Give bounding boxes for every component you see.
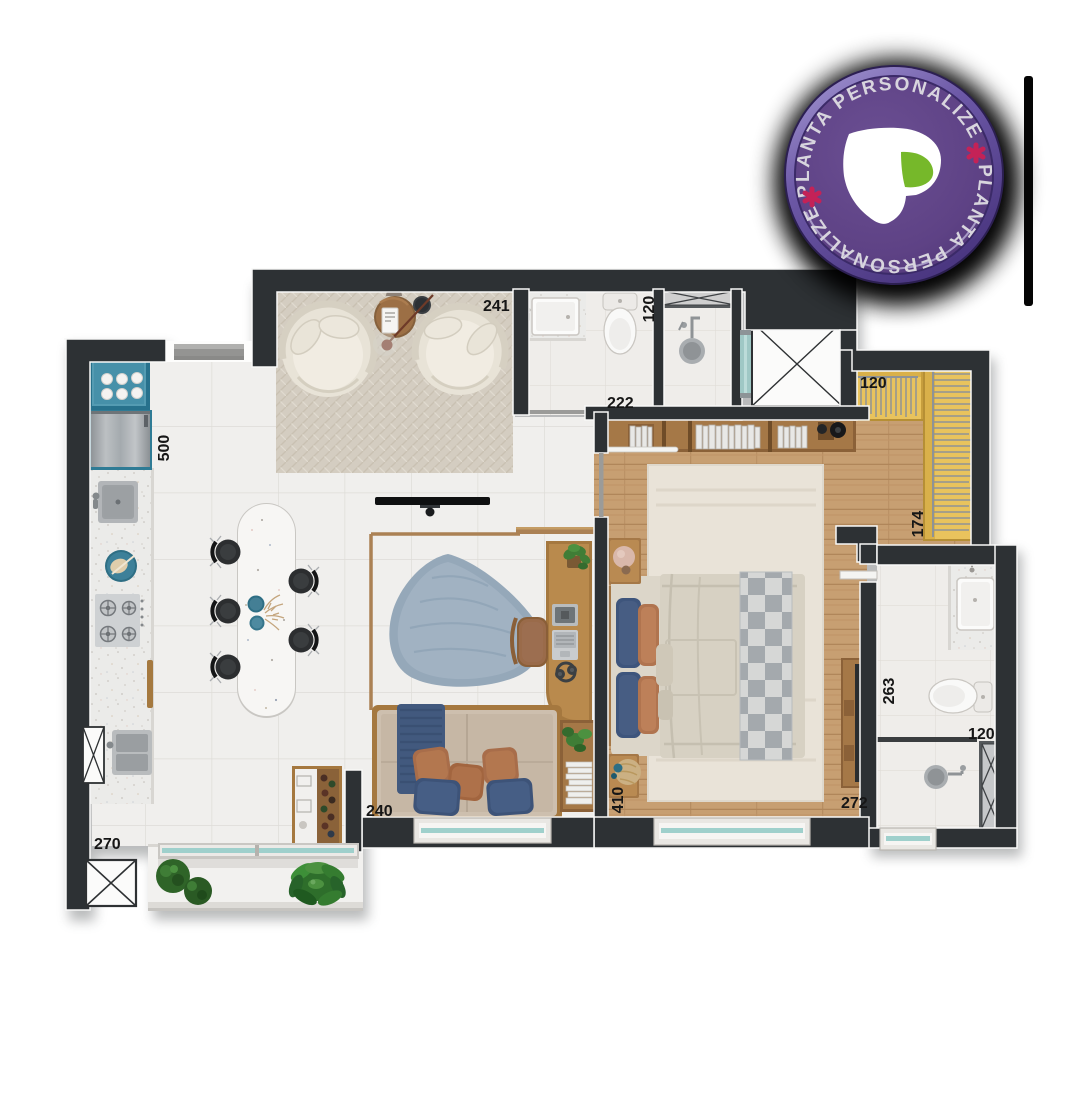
svg-text:410: 410: [610, 787, 627, 814]
svg-text:241: 241: [483, 298, 510, 315]
svg-text:272: 272: [841, 795, 868, 812]
svg-text:174: 174: [910, 511, 927, 538]
svg-text:270: 270: [94, 836, 121, 853]
svg-text:120: 120: [968, 726, 995, 743]
svg-text:120: 120: [641, 296, 658, 323]
svg-text:222: 222: [607, 395, 634, 412]
svg-text:263: 263: [881, 678, 898, 705]
svg-text:120: 120: [860, 375, 887, 392]
svg-text:500: 500: [156, 435, 173, 462]
svg-text:240: 240: [366, 803, 393, 820]
